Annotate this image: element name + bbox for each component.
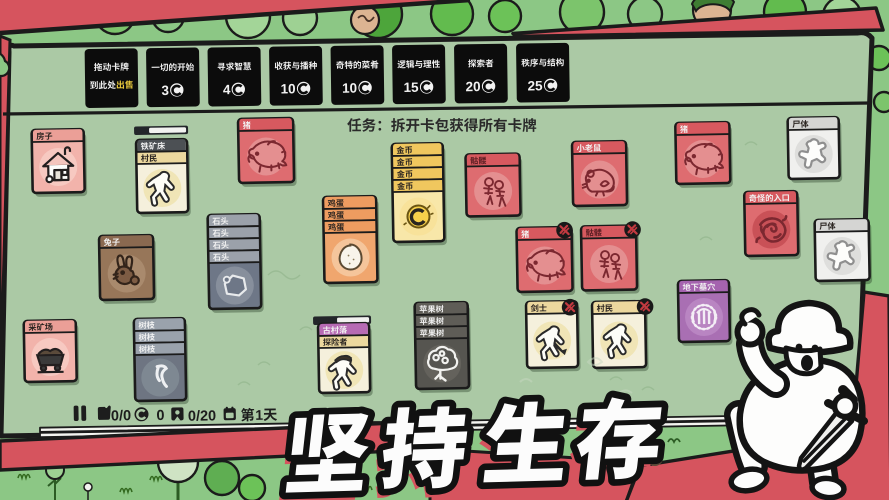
- svg-text:0: 0: [156, 408, 164, 424]
- svg-text:3: 3: [161, 83, 169, 98]
- svg-text:4: 4: [223, 82, 231, 97]
- svg-text:25: 25: [527, 78, 543, 93]
- svg-text:10: 10: [342, 81, 357, 96]
- svg-text:0/0: 0/0: [111, 408, 131, 424]
- svg-text:15: 15: [403, 80, 419, 95]
- svg-text:0/20: 0/20: [188, 408, 217, 424]
- svg-text:20: 20: [465, 79, 480, 94]
- svg-text:10: 10: [280, 81, 295, 96]
- svg-text:1: 1: [255, 407, 263, 423]
